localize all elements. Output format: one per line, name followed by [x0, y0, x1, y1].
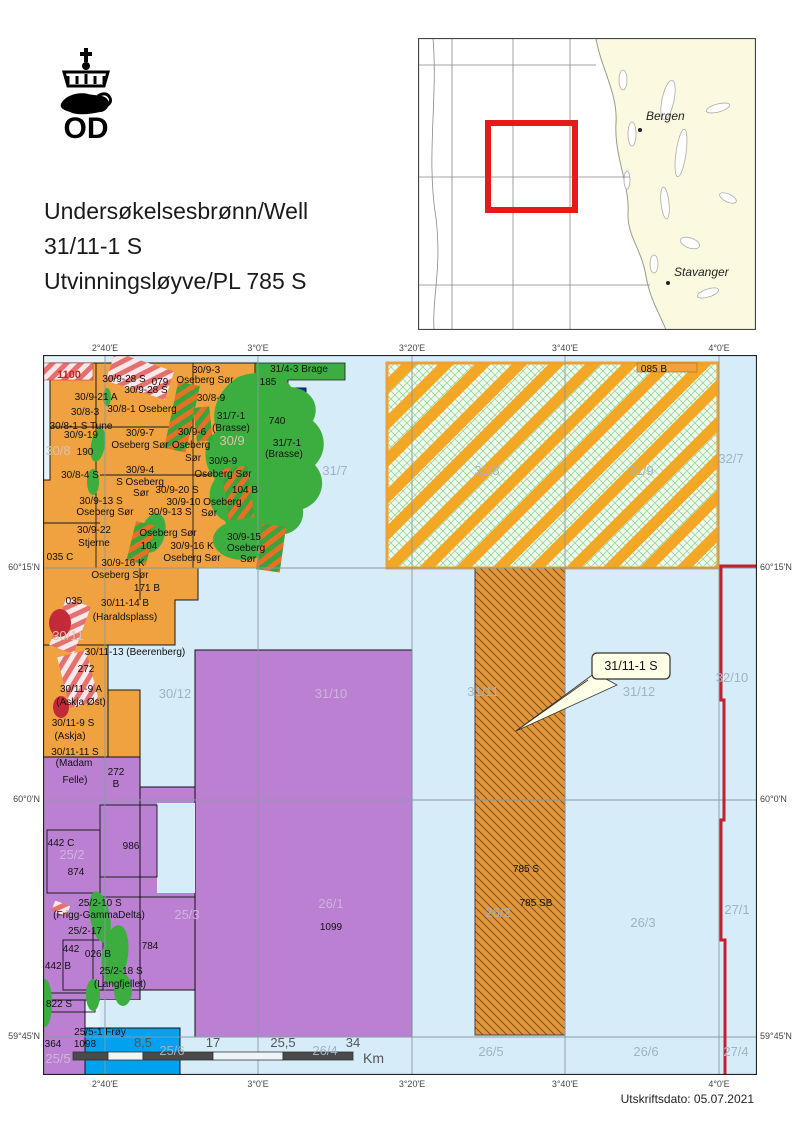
map-label: 31/7-1 — [273, 438, 302, 449]
map-label: 30/9-22 — [77, 525, 111, 536]
map-label: 27/1 — [724, 902, 749, 917]
scale-tick-label: 25,5 — [270, 1035, 295, 1050]
map-label: 1099 — [320, 922, 343, 933]
map-label: 874 — [68, 867, 85, 878]
main-map: Km 31/11-1 S 110030/9-28 S07930/9-28 S30… — [43, 355, 757, 1075]
map-label: 30/9-6 — [178, 427, 207, 438]
map-label: 31/8 — [474, 463, 499, 478]
od-logo: OD — [48, 46, 124, 142]
map-label: Sør — [133, 488, 150, 499]
map-label: 30/9-13 S — [79, 496, 123, 507]
map-label: 25/2-10 S — [78, 898, 122, 909]
map-label: 31/9 — [628, 463, 653, 478]
map-label: (Langfjellet) — [94, 979, 146, 990]
lat-label-right: 60°15'N — [760, 562, 792, 572]
map-label: 30/9-4 — [126, 465, 155, 476]
map-label: Oseberg Sør — [176, 375, 234, 386]
map-label: (Frigg-GammaDelta) — [53, 910, 145, 921]
lon-label-bottom: 2°40'E — [92, 1079, 118, 1089]
map-label: 171 B — [134, 583, 160, 594]
well-callout-label: 31/11-1 S — [604, 659, 657, 673]
pl-785-s-strip — [475, 568, 565, 1035]
map-label: Oseberg Sør — [139, 528, 197, 539]
scale-tick-label: 17 — [206, 1035, 220, 1050]
map-label: 30/11 — [52, 628, 84, 643]
lon-label-bottom: 3°20'E — [399, 1079, 425, 1089]
scale-tick-label: 8,5 — [134, 1035, 152, 1050]
lon-label-top: 2°40'E — [92, 343, 118, 353]
sea-notch-2 — [100, 1000, 157, 1028]
map-label: 31/4-3 Brage — [270, 364, 328, 375]
map-label: 30/9-16 K — [170, 541, 214, 552]
lat-label-left: 60°15'N — [0, 562, 40, 572]
title-line-2: 31/11-1 S — [44, 229, 308, 264]
map-label: 30/9-19 — [64, 430, 98, 441]
map-label: 25/2-18 S — [99, 966, 143, 977]
map-label: (Madam — [56, 758, 93, 769]
map-label: 25/3 — [174, 907, 199, 922]
map-label: 026 B — [85, 949, 111, 960]
block-1099 — [195, 650, 412, 1037]
map-label: 442 B — [45, 961, 71, 972]
map-label: 26/5 — [478, 1044, 503, 1059]
inset-map: Bergen Stavanger — [418, 38, 756, 330]
map-label: 785 S — [513, 864, 539, 875]
page-title: Undersøkelsesbrønn/Well 31/11-1 S Utvinn… — [44, 194, 308, 299]
map-label: 25/5 — [45, 1051, 70, 1066]
map-label: Sør — [240, 554, 257, 565]
map-label: (Askja Øst) — [56, 697, 105, 708]
lat-label-right: 59°45'N — [760, 1031, 792, 1041]
map-label: 31/11 — [467, 684, 499, 699]
map-label: Sør — [185, 453, 202, 464]
stavanger-dot-icon — [666, 281, 670, 285]
bergen-dot-icon — [638, 128, 642, 132]
print-date: Utskriftsdato: 05.07.2021 — [621, 1092, 754, 1106]
lon-label-bottom: 3°0'E — [247, 1079, 268, 1089]
map-label: 30/9-13 S — [148, 507, 192, 518]
map-label: Oseberg Sør — [91, 570, 149, 581]
map-label: 30/9-16 K — [101, 558, 145, 569]
map-label: 364 — [45, 1039, 62, 1050]
map-label: 784 — [142, 941, 159, 952]
map-label: Oseberg — [172, 440, 210, 451]
map-label: 26/6 — [633, 1044, 658, 1059]
lon-label-bottom: 3°40'E — [552, 1079, 578, 1089]
page: { "header": { "logo_text": "OD", "title_… — [0, 0, 794, 1122]
map-label: 25/2-17 — [68, 926, 102, 937]
map-label: 32/10 — [716, 670, 749, 685]
sea-notch-1 — [157, 803, 195, 893]
map-label: 1098 — [74, 1039, 97, 1050]
map-label: 31/12 — [623, 684, 656, 699]
lat-label-left: 59°45'N — [0, 1031, 40, 1041]
map-label: Oseberg Sør — [111, 440, 169, 451]
map-label: 30/8-1 Oseberg — [107, 404, 177, 415]
map-label: 30/9-15 — [227, 532, 261, 543]
map-label: 740 — [269, 416, 286, 427]
inset-map-graphic: Bergen Stavanger — [418, 38, 756, 330]
map-label: 30/9 — [219, 433, 244, 448]
lon-label-top: 4°0'E — [708, 343, 729, 353]
map-label: 26/2 — [485, 905, 510, 920]
map-label: 986 — [123, 841, 140, 852]
map-label: 190 — [77, 447, 94, 458]
map-label: Oseberg Sør — [194, 469, 252, 480]
map-label: Oseberg Sør — [76, 507, 134, 518]
map-label: 30/9-7 — [126, 428, 155, 439]
map-label: 30/11-9 S — [52, 718, 95, 729]
map-label: B — [113, 779, 120, 790]
map-label: 30/12 — [159, 686, 192, 701]
map-label: 30/8-9 — [197, 393, 226, 404]
map-label: (Brasse) — [265, 449, 303, 460]
map-label: 30/8-4 S — [61, 470, 99, 481]
lon-label-top: 3°20'E — [399, 343, 425, 353]
map-label: 30/8-3 — [71, 407, 100, 418]
scale-unit-label: Km — [363, 1050, 384, 1066]
map-label: Felle) — [62, 775, 87, 786]
map-label: 272 — [108, 767, 125, 778]
map-label: 27/4 — [723, 1044, 748, 1059]
city-label-stavanger: Stavanger — [674, 265, 730, 279]
scale-tick-label: 34 — [346, 1035, 360, 1050]
map-label: 30/11-13 (Beerenberg) — [85, 647, 185, 658]
map-label: 785 SB — [520, 898, 553, 909]
logo-text: OD — [64, 112, 109, 142]
map-label: 104 — [141, 541, 158, 552]
lon-label-top: 3°0'E — [247, 343, 268, 353]
map-label: 30/11-9 A — [60, 684, 102, 695]
map-label: 25/6 — [159, 1043, 184, 1058]
map-label: 30/11-14 B — [101, 598, 150, 609]
main-map-graphic: Km 31/11-1 S 110030/9-28 S07930/9-28 S30… — [43, 355, 757, 1075]
map-label: 272 — [78, 664, 95, 675]
map-label: 26/1 — [318, 896, 343, 911]
hatched-licence-block — [387, 363, 718, 568]
lat-label-left: 60°0'N — [0, 794, 40, 804]
map-label: 30/9-20 S — [155, 485, 199, 496]
map-label: 30/9-9 — [209, 456, 238, 467]
map-label: 035 C — [47, 552, 74, 563]
logo-cross-icon — [80, 48, 92, 62]
map-label: 822 S — [46, 999, 72, 1010]
map-label: 25/5-1 Frøy — [74, 1027, 126, 1038]
lat-label-right: 60°0'N — [760, 794, 787, 804]
map-label: 185 — [260, 377, 277, 388]
lon-label-top: 3°40'E — [552, 343, 578, 353]
map-label: 26/3 — [630, 915, 655, 930]
map-label: 32/7 — [718, 451, 743, 466]
map-label: 31/7-1 — [217, 411, 246, 422]
map-label: 30/8 — [45, 443, 70, 458]
map-label: 25/2 — [59, 847, 84, 862]
map-label: (Haraldsplass) — [93, 612, 157, 623]
map-label: Oseberg Sør — [163, 553, 221, 564]
city-label-bergen: Bergen — [646, 109, 685, 123]
map-label: 30/9-28 S — [124, 385, 168, 396]
od-logo-graphic: OD — [48, 46, 124, 142]
title-line-3: Utvinningsløyve/PL 785 S — [44, 264, 308, 299]
map-label: 26/4 — [312, 1043, 337, 1058]
map-label: 30/9-21 A — [75, 392, 118, 403]
map-label: 1100 — [57, 369, 81, 381]
map-label: Sør — [201, 508, 218, 519]
map-label: (Askja) — [54, 731, 85, 742]
lon-label-bottom: 4°0'E — [708, 1079, 729, 1089]
map-label: 31/7 — [322, 463, 347, 478]
map-label: 30/9-28 S — [102, 374, 146, 385]
map-label: 442 — [63, 944, 80, 955]
map-label: 104 B — [232, 485, 258, 496]
map-label: 085 B — [641, 364, 667, 375]
map-label: Oseberg — [227, 543, 265, 554]
map-label: Stjerne — [78, 538, 110, 549]
map-label: 30/11-11 S — [51, 747, 99, 758]
map-label: 31/10 — [315, 686, 348, 701]
title-line-1: Undersøkelsesbrønn/Well — [44, 194, 308, 229]
scale-bar — [73, 1052, 353, 1060]
map-label: 035 — [66, 596, 83, 607]
